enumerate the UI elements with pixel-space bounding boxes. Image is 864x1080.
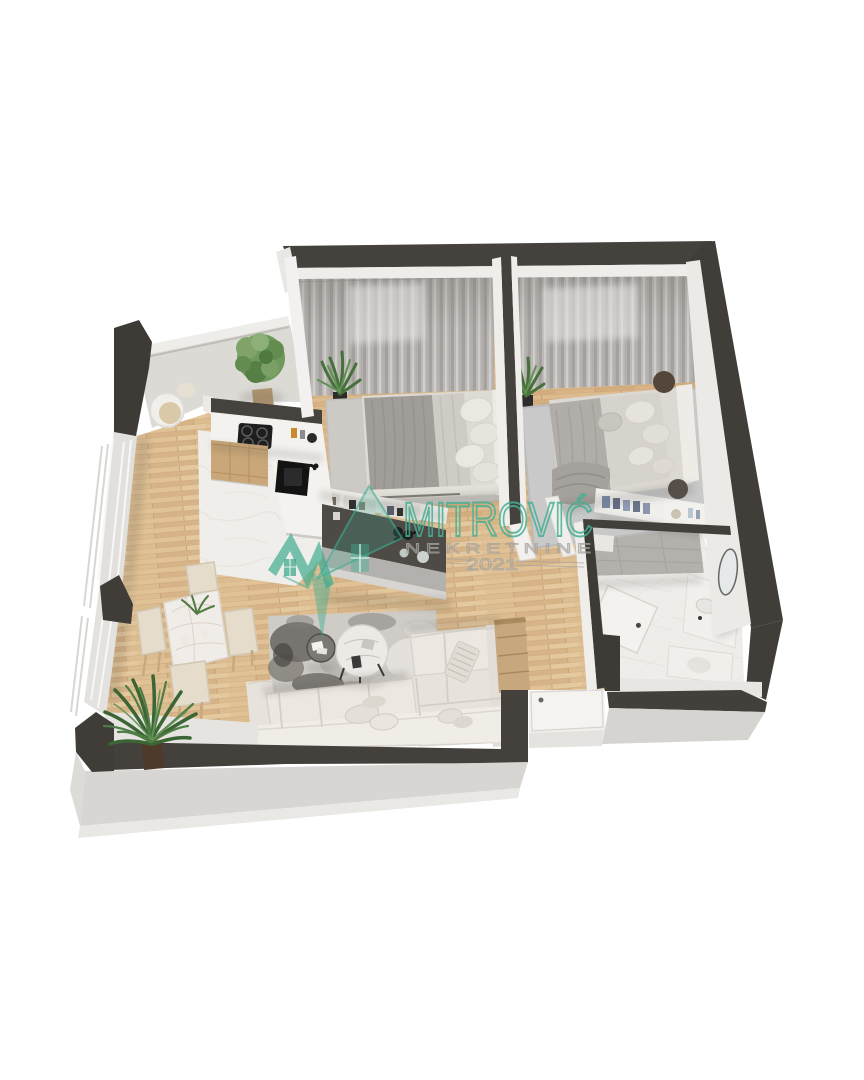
svg-text:MITROVIĆ: MITROVIĆ xyxy=(403,493,593,547)
svg-text:2021: 2021 xyxy=(466,555,518,574)
svg-text:N E K R E T N I N E: N E K R E T N I N E xyxy=(405,540,591,556)
